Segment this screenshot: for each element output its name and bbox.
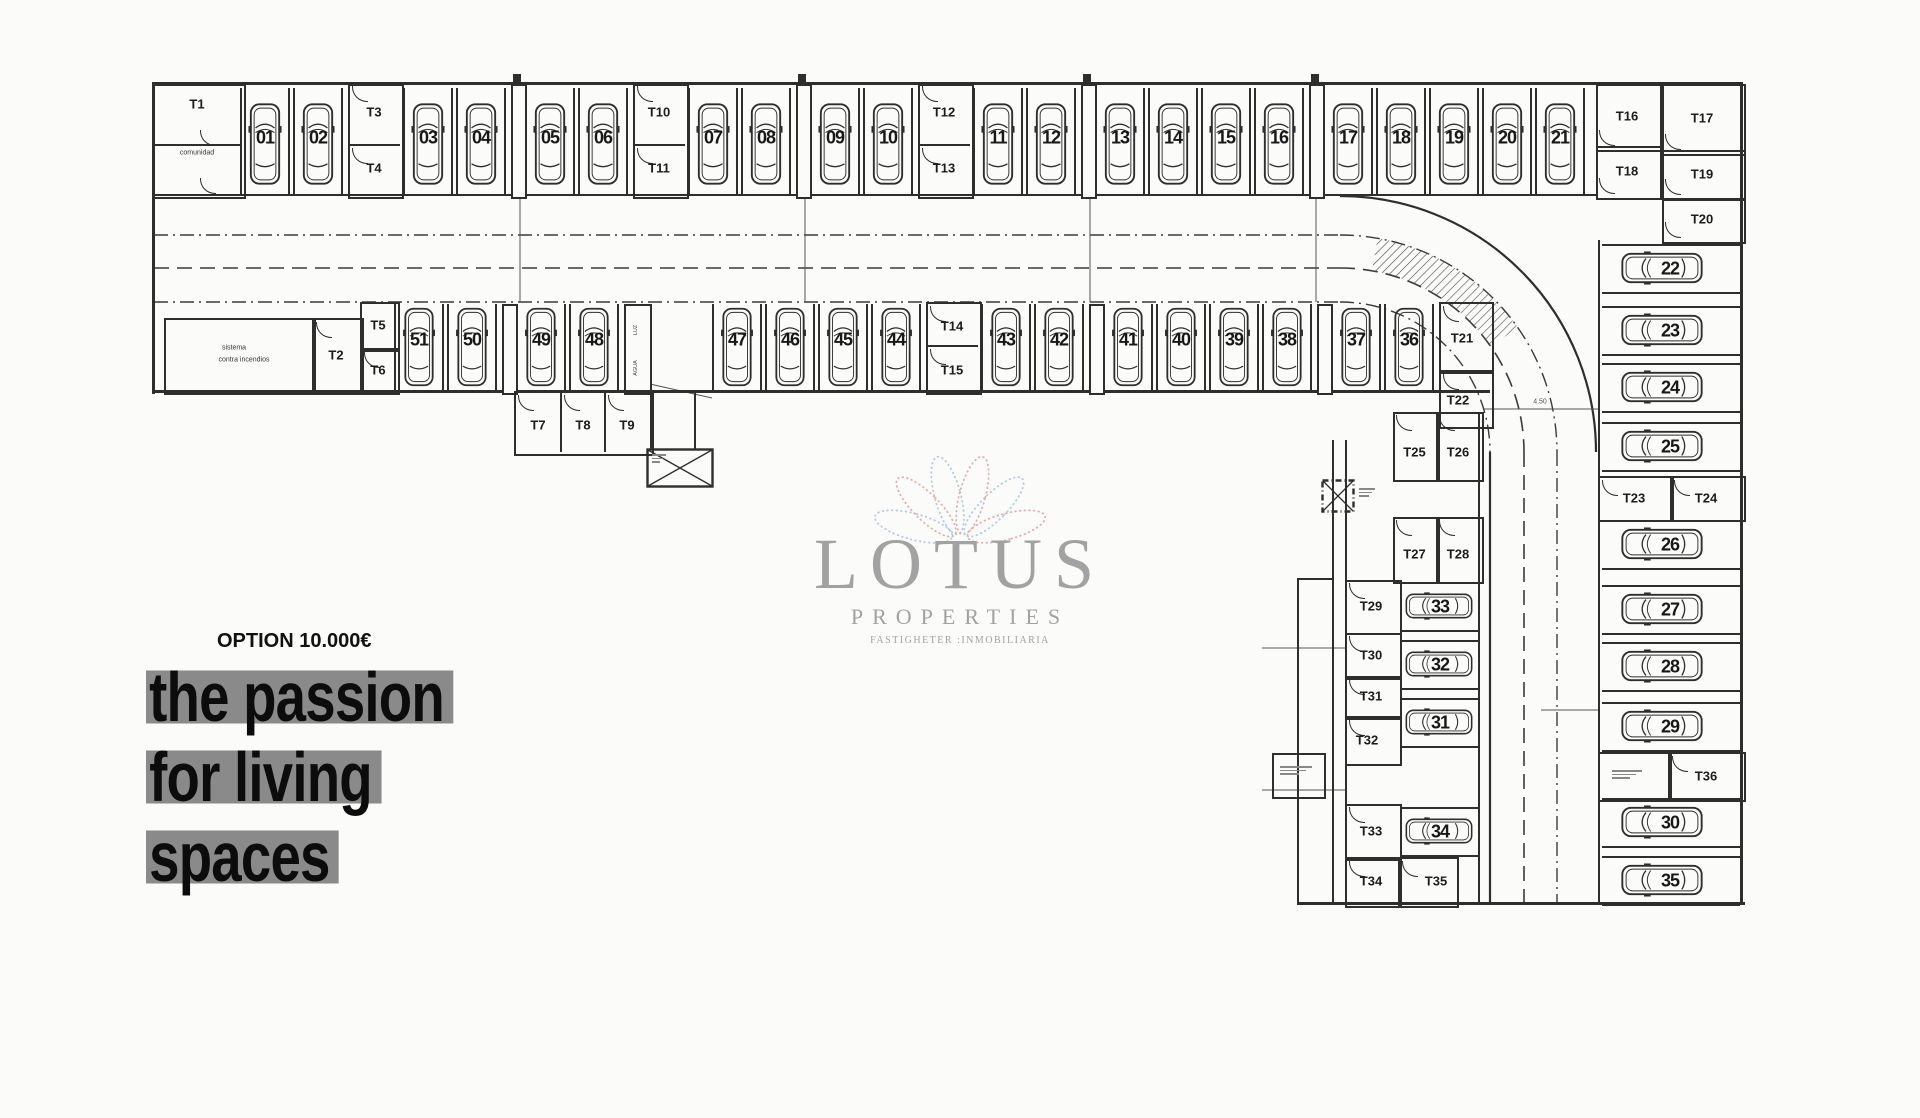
wall-segment (1254, 88, 1256, 195)
room-label: T3 (366, 105, 381, 120)
wall-segment (604, 391, 606, 452)
room-label: T17 (1691, 111, 1713, 126)
wall-segment (1400, 640, 1478, 642)
room-label: T13 (933, 161, 955, 176)
wall-segment (1400, 582, 1478, 584)
right-column-wall (1598, 240, 1600, 904)
wall-segment (1602, 470, 1740, 472)
wall-segment (1602, 568, 1740, 570)
stall-number: 14 (1164, 128, 1182, 149)
wall-segment (736, 88, 738, 195)
stall-number: 26 (1661, 535, 1679, 556)
room-label: T23 (1623, 491, 1645, 506)
stall-number: 22 (1661, 259, 1679, 280)
wall-segment (1103, 304, 1105, 391)
wall-segment (1432, 304, 1434, 391)
room-label: T29 (1360, 598, 1382, 613)
room-label: T30 (1360, 647, 1382, 662)
stall-number: 42 (1050, 330, 1068, 351)
wall-segment (1143, 88, 1145, 195)
room-label: T9 (619, 418, 634, 433)
stall-number: 44 (887, 330, 905, 351)
elevator-shaft-icon (1321, 479, 1355, 513)
stall-number: 24 (1661, 378, 1679, 399)
wall-segment (981, 304, 983, 391)
stall-number: 49 (532, 330, 550, 351)
illegible-note (1359, 486, 1375, 499)
wall-segment (442, 304, 444, 391)
stall-number: 27 (1661, 600, 1679, 621)
wall-segment (152, 144, 242, 146)
stall-number: 10 (879, 128, 897, 149)
stall-number: 30 (1661, 813, 1679, 834)
wall-segment (1602, 363, 1740, 365)
wall-segment (1026, 88, 1028, 195)
stall-number: 19 (1445, 128, 1463, 149)
wall-stub (798, 74, 806, 83)
wall-segment (525, 88, 527, 195)
wall-segment (1602, 306, 1740, 308)
wall-segment (1379, 304, 1381, 391)
wall-segment (1400, 746, 1478, 748)
wall-segment (1151, 304, 1153, 391)
wall-segment (1400, 807, 1478, 809)
wall-segment (1021, 88, 1023, 195)
room-label: T7 (530, 418, 545, 433)
wall-segment (1583, 88, 1585, 195)
stall-number: 12 (1042, 128, 1060, 149)
stall-number: 05 (541, 128, 559, 149)
wall-segment (1209, 304, 1211, 391)
stall-number: 15 (1217, 128, 1235, 149)
wall-segment (1424, 88, 1426, 195)
stall-number: 48 (585, 330, 603, 351)
wall-segment (911, 88, 913, 195)
illegible-note (652, 452, 666, 465)
wall-segment (650, 391, 652, 450)
room-label: T11 (648, 161, 670, 176)
wall-segment (1376, 88, 1378, 195)
stall-number: 23 (1661, 321, 1679, 342)
room-label: T26 (1447, 445, 1469, 460)
wall-segment (560, 391, 562, 452)
stall-number: 20 (1498, 128, 1516, 149)
room-label: T12 (933, 105, 955, 120)
wall-segment (741, 88, 743, 195)
stall-number: 46 (781, 330, 799, 351)
stall-number: 21 (1551, 128, 1569, 149)
wall-segment (348, 144, 400, 146)
wall-segment (789, 88, 791, 195)
room-label: sistema (222, 345, 246, 352)
stall-number: 01 (256, 128, 274, 149)
wall-segment (694, 391, 696, 450)
wall-segment (456, 88, 458, 195)
wall-segment (403, 88, 405, 195)
wall-segment (1477, 88, 1479, 195)
stall-number: 51 (410, 330, 428, 351)
wall-segment (1602, 702, 1740, 704)
room-label: T22 (1447, 393, 1469, 408)
room-label: T16 (1616, 109, 1638, 124)
room-label: T36 (1695, 769, 1717, 784)
wall-segment (1029, 304, 1031, 391)
wall-segment (1196, 88, 1198, 195)
stall-number: 28 (1661, 657, 1679, 678)
wall-segment (569, 304, 571, 391)
stall-number: 17 (1339, 128, 1357, 149)
stall-number: 02 (309, 128, 327, 149)
wall-segment (495, 304, 497, 391)
room-label: contra incendios (219, 357, 270, 364)
stall-number: 39 (1225, 330, 1243, 351)
stall-number: 08 (757, 128, 775, 149)
wall-segment (1602, 856, 1740, 858)
wall-segment (1602, 690, 1740, 692)
stall-number: 13 (1111, 128, 1129, 149)
wall-segment (1602, 846, 1740, 848)
room-label: T2 (328, 348, 343, 363)
wall-segment (1310, 304, 1312, 391)
room-label: T6 (370, 363, 385, 378)
wall-stub (1311, 74, 1319, 83)
wall-segment (918, 144, 970, 146)
wall-segment (926, 345, 978, 347)
wall-segment (1297, 578, 1332, 580)
wall-segment (1535, 88, 1537, 195)
wall-segment (1257, 304, 1259, 391)
wall-segment (1074, 88, 1076, 195)
wall-segment (765, 304, 767, 391)
slogan-line-1: the passion (146, 660, 453, 740)
stall-number: 38 (1278, 330, 1296, 351)
wall-segment (858, 88, 860, 195)
stall-number: 35 (1661, 871, 1679, 892)
room-label: T15 (941, 363, 963, 378)
wall-segment (1384, 304, 1386, 391)
wall-segment (1602, 633, 1740, 635)
room-label: LUZ (633, 325, 639, 335)
room-label: T14 (941, 319, 963, 334)
stall-number: 31 (1431, 713, 1449, 734)
stall-number: 03 (419, 128, 437, 149)
wall-segment (919, 304, 921, 391)
room-label: T1 (189, 97, 204, 112)
wall-segment (516, 304, 518, 391)
wall-segment (1400, 688, 1478, 690)
room-label: T18 (1616, 164, 1638, 179)
wall-segment (1602, 422, 1740, 424)
wall-segment (633, 144, 685, 146)
room-label: comunidad (180, 150, 214, 157)
room-label: T21 (1451, 331, 1473, 346)
wall-segment (1331, 304, 1333, 391)
stall-number: 11 (989, 128, 1006, 149)
storage-column (633, 84, 689, 199)
room-label: T25 (1403, 445, 1425, 460)
wall-stub (1083, 74, 1091, 83)
wall-segment (1204, 304, 1206, 391)
stall-number: 06 (594, 128, 612, 149)
wall-segment (341, 88, 343, 195)
wall-segment (1302, 88, 1304, 195)
stall-number: 50 (463, 330, 481, 351)
wall-segment (863, 88, 865, 195)
room-label: T28 (1447, 547, 1469, 562)
wall-segment (1602, 585, 1740, 587)
stall-number: 04 (472, 128, 490, 149)
room-label: T27 (1403, 547, 1425, 562)
slogan-line-2: for living (146, 740, 453, 820)
wall-segment (447, 304, 449, 391)
wall-segment (394, 304, 396, 391)
wall-segment (973, 88, 975, 195)
wall-segment (1602, 411, 1740, 413)
stall-column-wall (1478, 412, 1480, 904)
stall-number: 32 (1431, 655, 1449, 676)
room-label: T8 (575, 418, 590, 433)
wall-segment (813, 304, 815, 391)
room-label: T34 (1360, 874, 1382, 889)
wall-segment (688, 88, 690, 195)
room-label: T4 (366, 161, 381, 176)
stall-number: 07 (704, 128, 722, 149)
wall-segment (573, 88, 575, 195)
wall-segment (1530, 88, 1532, 195)
wall-segment (617, 304, 619, 391)
illegible-note (1280, 764, 1312, 777)
floor-plan: 4.50 LOTUS PROPERTIES FASTIGHETER :INMOB… (0, 0, 1920, 1118)
stall-number: 16 (1270, 128, 1288, 149)
wall-segment (810, 88, 812, 195)
wall-segment (1148, 88, 1150, 195)
wall-segment (1156, 304, 1158, 391)
room-label: T5 (370, 318, 385, 333)
wall-stub (513, 74, 521, 83)
stall-number: 37 (1347, 330, 1365, 351)
wall-segment (1249, 88, 1251, 195)
slogan-line-3: spaces (146, 820, 453, 900)
stall-number: 40 (1172, 330, 1190, 351)
wall-segment (871, 304, 873, 391)
stall-number: 34 (1431, 822, 1449, 843)
illegible-note (1612, 768, 1642, 781)
wall-segment (293, 88, 295, 195)
wall-segment (818, 304, 820, 391)
wall-segment (1400, 630, 1478, 632)
wall-segment (1602, 244, 1740, 246)
wall-segment (1482, 88, 1484, 195)
stall-number: 09 (826, 128, 844, 149)
wall-segment (564, 304, 566, 391)
wall-segment (240, 88, 242, 195)
wall-segment (578, 88, 580, 195)
wall-segment (288, 88, 290, 195)
stall-number: 36 (1400, 330, 1418, 351)
room-label: T32 (1356, 733, 1378, 748)
room-label: T31 (1360, 689, 1382, 704)
room-label: T20 (1691, 212, 1713, 227)
wall-segment (1400, 698, 1478, 700)
stall-number: 45 (834, 330, 852, 351)
wall-segment (1262, 304, 1264, 391)
road-dimension-label: 4.50 (1533, 399, 1547, 406)
outer-wall-bottom-left (1297, 578, 1299, 904)
room-label: T24 (1695, 491, 1717, 506)
wall-segment (1095, 88, 1097, 195)
slogan-block: the passion for living spaces (146, 660, 540, 900)
wall-segment (760, 304, 762, 391)
room-label: T19 (1691, 166, 1713, 181)
wall-segment (1602, 292, 1740, 294)
wall-segment (504, 88, 506, 195)
wall-segment (1201, 88, 1203, 195)
wall-segment (626, 88, 628, 195)
utility-shaft (624, 304, 652, 395)
wall-segment (1082, 304, 1084, 391)
wall-segment (1034, 304, 1036, 391)
room-label: T33 (1360, 823, 1382, 838)
stall-number: 33 (1431, 597, 1449, 618)
wall-segment (1429, 88, 1431, 195)
storage-column (918, 84, 974, 199)
stall-number: 41 (1119, 330, 1137, 351)
wall-segment (1602, 642, 1740, 644)
stall-number: 25 (1661, 437, 1679, 458)
stall-number: 47 (728, 330, 746, 351)
wall-segment (866, 304, 868, 391)
wall-segment (451, 88, 453, 195)
wall-segment (1371, 88, 1373, 195)
storage-column (348, 84, 404, 199)
stall-number: 18 (1392, 128, 1410, 149)
wall-segment (1602, 354, 1740, 356)
room-label: AGUA (633, 360, 639, 376)
room-label: T35 (1425, 874, 1447, 889)
stall-number: 29 (1661, 717, 1679, 738)
wall-segment (712, 304, 714, 391)
room-label: T10 (648, 105, 670, 120)
option-price-label: OPTION 10.000€ (217, 630, 372, 653)
wall-segment (1323, 88, 1325, 195)
stall-number: 43 (997, 330, 1015, 351)
